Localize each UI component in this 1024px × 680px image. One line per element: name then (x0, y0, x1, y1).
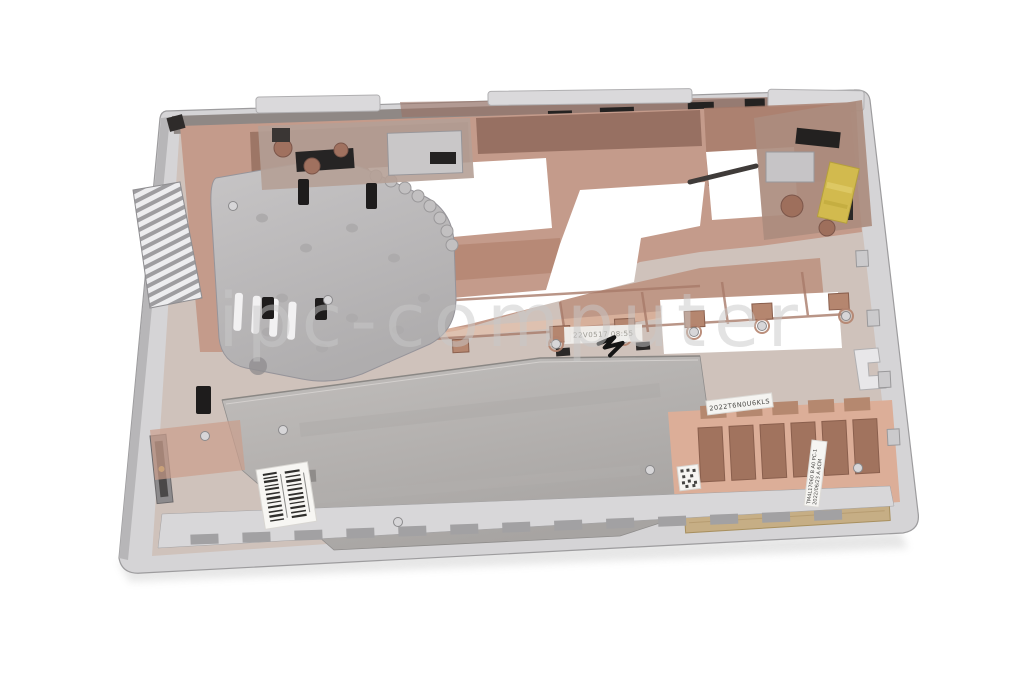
hinge-cover-center (488, 89, 692, 106)
watermark-text: ipc-computer (218, 278, 806, 364)
copper-patch-left (150, 420, 245, 480)
laptop-bottom-case-photo: 2022T6N0U6KLS TM4L17060 B A0 PC-1 2022/0… (0, 0, 1024, 680)
product-photo: 2022T6N0U6KLS TM4L17060 B A0 PC-1 2022/0… (0, 0, 1024, 680)
hinge-cover-left (256, 95, 380, 113)
barcode-label (256, 462, 317, 529)
qr-sticker (677, 464, 701, 490)
